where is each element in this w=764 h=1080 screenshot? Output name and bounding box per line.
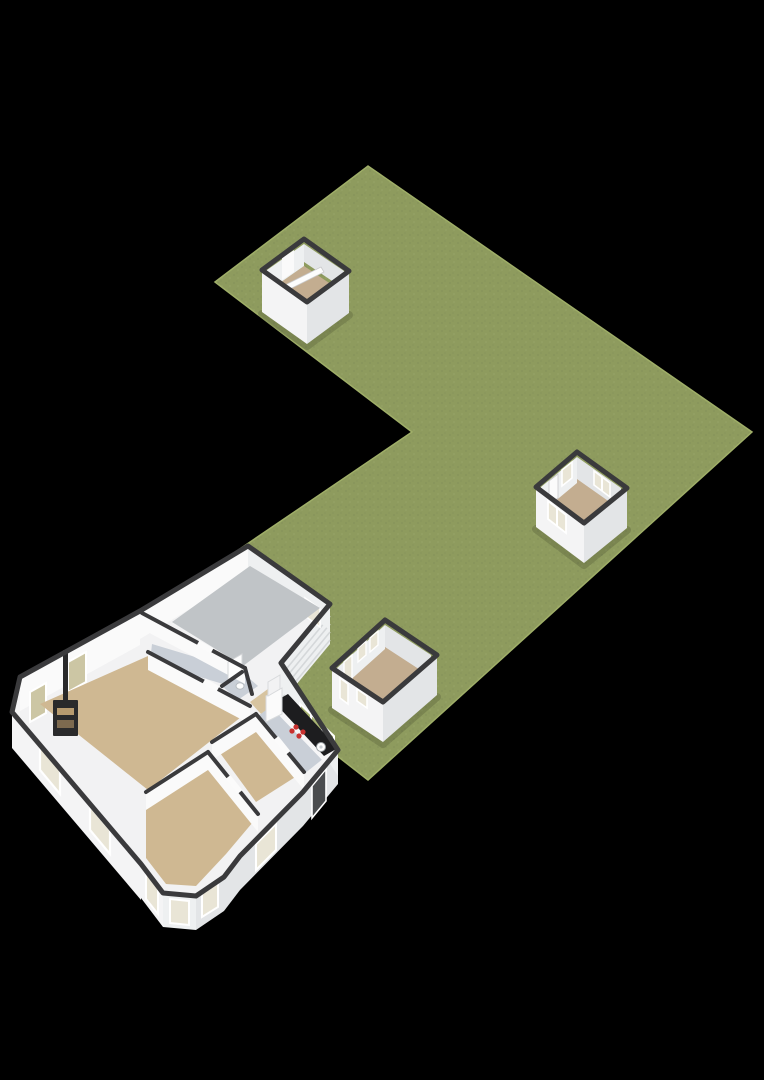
stove-log-drawer bbox=[57, 720, 74, 728]
stove-body bbox=[53, 700, 78, 736]
hob-burner bbox=[293, 724, 298, 729]
main-house bbox=[12, 546, 338, 932]
floorplan-stage bbox=[0, 0, 764, 1080]
toilet bbox=[236, 683, 244, 689]
stove-flue-pipe bbox=[63, 650, 68, 704]
hob-burner bbox=[300, 729, 305, 734]
hob-burner bbox=[296, 733, 301, 738]
bay-window-center bbox=[170, 899, 189, 925]
stove-firebox bbox=[57, 708, 74, 715]
hob-burner bbox=[289, 728, 294, 733]
floorplan-canvas bbox=[0, 0, 764, 1080]
sink-drain bbox=[319, 745, 322, 748]
